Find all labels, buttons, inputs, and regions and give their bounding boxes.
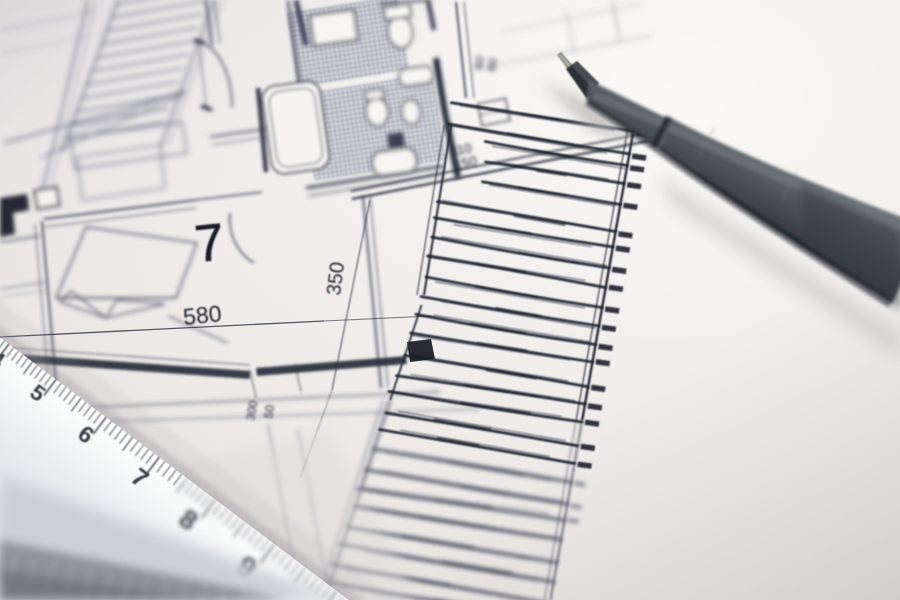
svg-text:50: 50 [261,404,277,420]
svg-text:60: 60 [484,57,500,73]
svg-text:7: 7 [192,213,227,274]
svg-text:350: 350 [323,261,349,297]
svg-text:580: 580 [182,300,223,330]
